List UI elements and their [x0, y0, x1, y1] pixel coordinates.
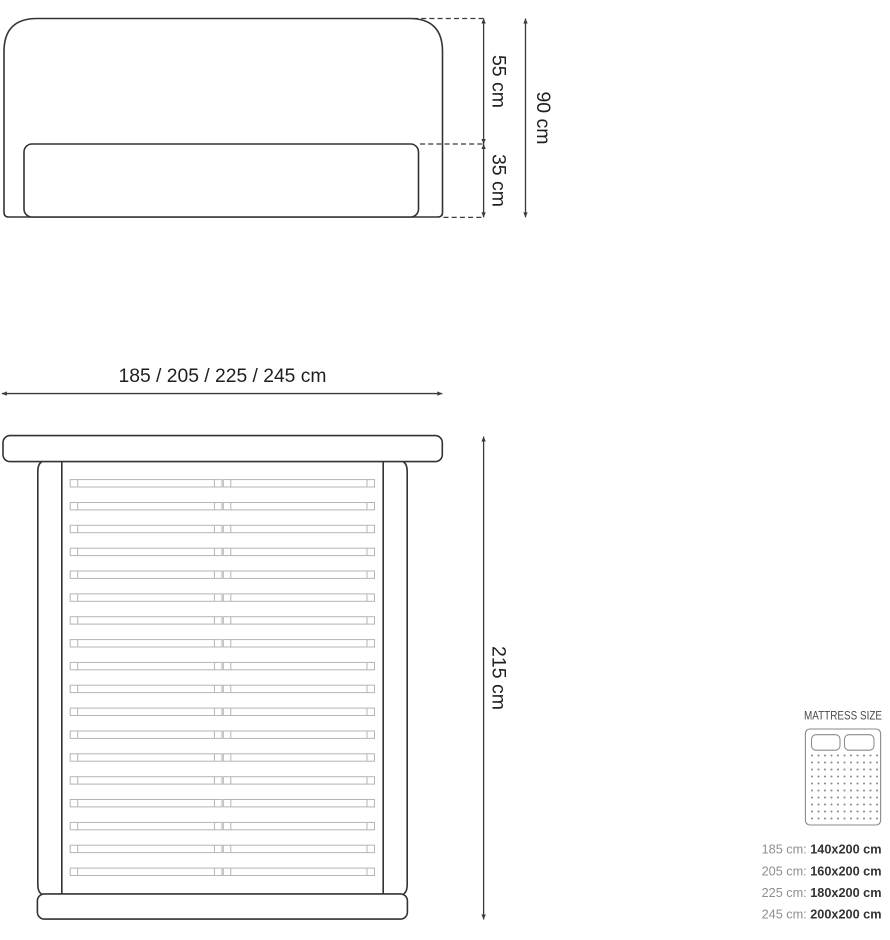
svg-text:MATTRESS SIZE: MATTRESS SIZE	[804, 710, 882, 723]
svg-text:205 cm: 160x200 cm: 205 cm: 160x200 cm	[762, 864, 882, 878]
svg-text:185 / 205 / 225 / 245 cm: 185 / 205 / 225 / 245 cm	[119, 366, 327, 387]
svg-text:90 cm: 90 cm	[532, 91, 554, 144]
svg-text:215 cm: 215 cm	[488, 646, 510, 710]
svg-text:185 cm: 140x200 cm: 185 cm: 140x200 cm	[762, 843, 882, 857]
svg-text:35 cm: 35 cm	[488, 154, 510, 207]
svg-text:225 cm: 180x200 cm: 225 cm: 180x200 cm	[762, 886, 882, 900]
svg-text:245 cm: 200x200 cm: 245 cm: 200x200 cm	[762, 908, 882, 922]
svg-text:55 cm: 55 cm	[488, 55, 510, 108]
